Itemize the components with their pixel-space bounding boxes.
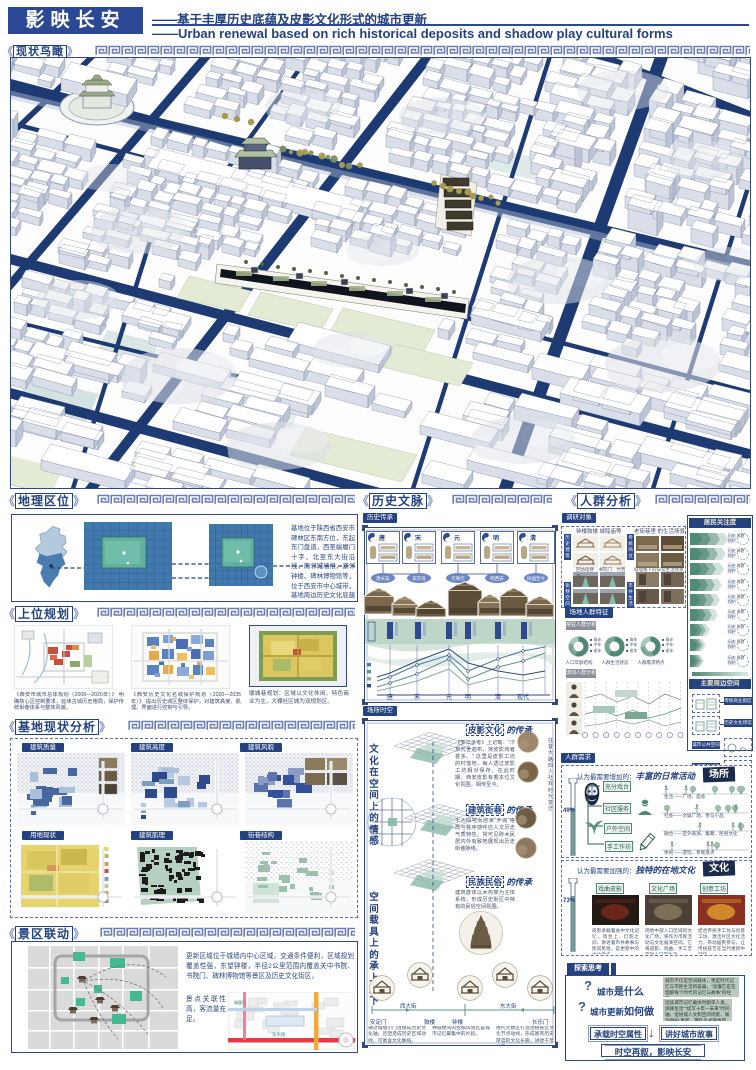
svg-text:明: 明 [493, 534, 499, 542]
svg-text:东大街: 东大街 [272, 1031, 286, 1038]
svg-text:宋: 宋 [415, 534, 421, 542]
svg-text:唐: 唐 [378, 534, 385, 542]
svg-text:清: 清 [530, 534, 536, 542]
svg-text:西大街: 西大街 [400, 1002, 417, 1010]
svg-text:东大街: 东大街 [500, 1002, 517, 1010]
svg-text:端履门: 端履门 [234, 999, 246, 1005]
svg-text:元: 元 [454, 535, 460, 542]
